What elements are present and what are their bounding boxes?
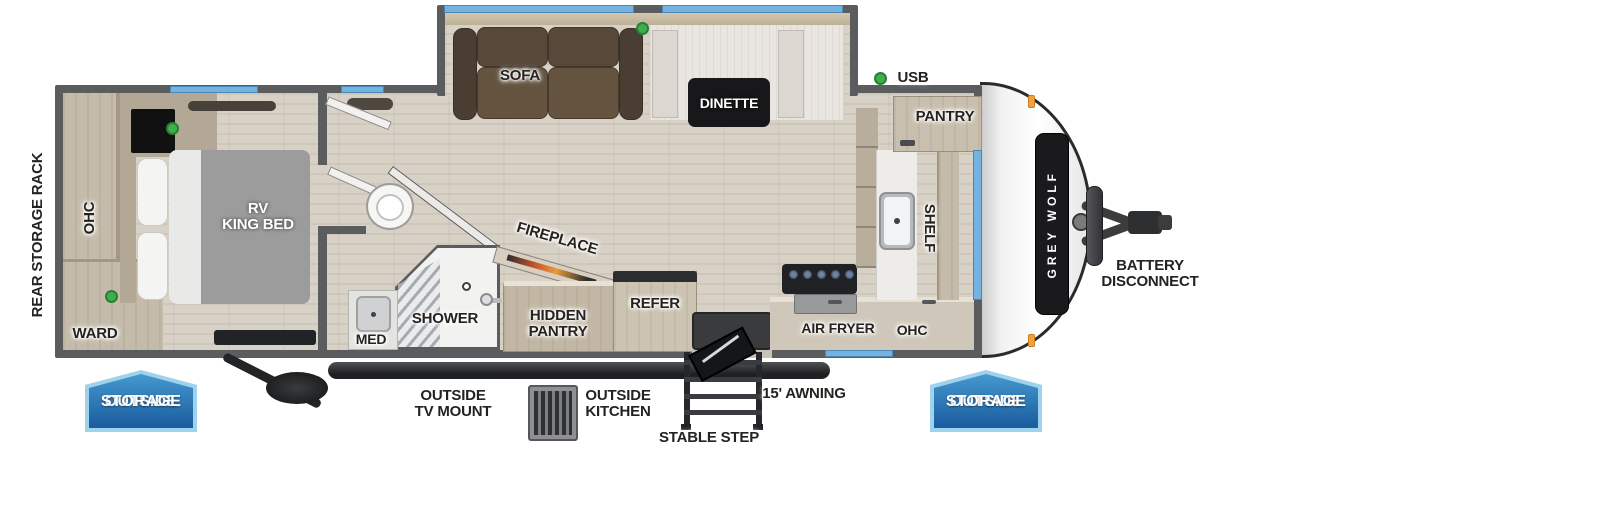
sofa-armrest-right	[619, 28, 643, 120]
battery-disconnect-label: BATTERY DISCONNECT	[1101, 258, 1198, 290]
dinette-label: DINETTE	[700, 95, 759, 111]
bed-overhead-shelf	[188, 101, 276, 111]
hitch-coupler	[1128, 211, 1162, 234]
slide-window-right	[662, 5, 843, 13]
burner	[803, 270, 812, 279]
sofa-seat-cushion	[548, 67, 619, 119]
stable-step-label: STABLE STEP	[659, 430, 759, 446]
counter-handle	[922, 300, 936, 304]
bedroom-ohc-label: OHC	[82, 202, 98, 235]
burner	[845, 270, 854, 279]
dinette-bench-left	[652, 30, 678, 118]
usb-label: USB	[897, 70, 928, 86]
kitchen-sink-drain	[894, 218, 900, 224]
cooktop	[782, 264, 857, 294]
bed-sheet	[169, 150, 201, 304]
sofa-back-cushion	[477, 27, 548, 67]
awning-label: 15' AWNING	[762, 386, 846, 402]
rear-storage-rack-label: REAR STORAGE RACK	[30, 153, 46, 318]
dinette-table: DINETTE	[688, 78, 770, 127]
marker-light-top	[1028, 95, 1035, 108]
pantry-label: PANTRY	[916, 109, 975, 125]
bathroom-window	[341, 86, 384, 93]
toilet-wall-stub	[318, 226, 366, 234]
toilet-seat	[376, 194, 404, 221]
pantry-handle	[900, 140, 915, 146]
step-rung	[684, 410, 762, 415]
usb-port-dot	[166, 122, 179, 135]
refrigerator-top	[613, 271, 697, 282]
hidden-pantry-label: HIDDEN PANTRY	[529, 308, 588, 340]
shelf-label: SHELF	[921, 204, 937, 252]
slide-valance	[445, 13, 850, 25]
counter-handle	[828, 300, 842, 304]
refer-label: REFER	[630, 296, 680, 312]
shower-drain	[462, 282, 471, 291]
med-label: MED	[356, 331, 387, 347]
bed-label: RV KING BED	[222, 201, 294, 233]
wardrobe-label: WARD	[72, 326, 117, 342]
foot-of-bed-tv	[214, 330, 316, 345]
burner	[817, 270, 826, 279]
burner	[789, 270, 798, 279]
sofa-back-cushion	[548, 27, 619, 67]
usb-port-dot	[636, 22, 649, 35]
step-rung	[684, 394, 762, 399]
step-rung	[684, 377, 762, 382]
outside-tv-mount-base	[266, 372, 328, 404]
pillow	[137, 232, 168, 300]
usb-port-dot	[105, 290, 118, 303]
divider-wall-lower	[318, 233, 327, 350]
bedroom-window	[170, 86, 258, 93]
burner	[831, 270, 840, 279]
kitchen-wall-cabinets	[856, 108, 878, 268]
outside-kitchen-label: OUTSIDE KITCHEN	[585, 388, 650, 420]
rv-floor-plan: BATTERY DISCONNECT GREY WOLF SOFA DINETT…	[0, 0, 1600, 525]
shower-label: SHOWER	[412, 311, 478, 327]
shower-faucet-handle	[480, 293, 493, 306]
sofa-armrest-left	[453, 28, 477, 120]
outside-tv-mount-label: OUTSIDE TV MOUNT	[415, 388, 492, 420]
front-window	[973, 150, 982, 300]
usb-port-dot	[874, 72, 887, 85]
brand-logo: GREY WOLF	[1045, 170, 1059, 278]
marker-light-bottom	[1028, 334, 1035, 347]
sofa-label: SOFA	[500, 68, 540, 84]
pillow	[137, 158, 168, 226]
kitchen-bottom-window	[825, 350, 893, 357]
tongue-jack-bar	[1086, 186, 1103, 266]
headboard	[120, 157, 136, 303]
range-front	[794, 294, 857, 314]
slide-window-left	[444, 5, 634, 13]
bath-sink-drain	[371, 312, 376, 317]
hitch-coupler-tip	[1158, 215, 1172, 230]
dinette-bench-right	[778, 30, 804, 118]
outside-kitchen-grill-icon	[528, 385, 578, 441]
kitchen-ohc-label: OHC	[897, 322, 928, 338]
grill-slats	[534, 391, 572, 435]
outside-storage-badge-right: OUTSIDE STORAGE	[930, 370, 1042, 432]
kitchen-tall-panel	[937, 150, 959, 300]
air-fryer-label: AIR FRYER	[801, 320, 874, 336]
brand-panel: GREY WOLF	[1035, 133, 1069, 315]
outside-storage-badge-left: OUTSIDE STORAGE	[85, 370, 197, 432]
